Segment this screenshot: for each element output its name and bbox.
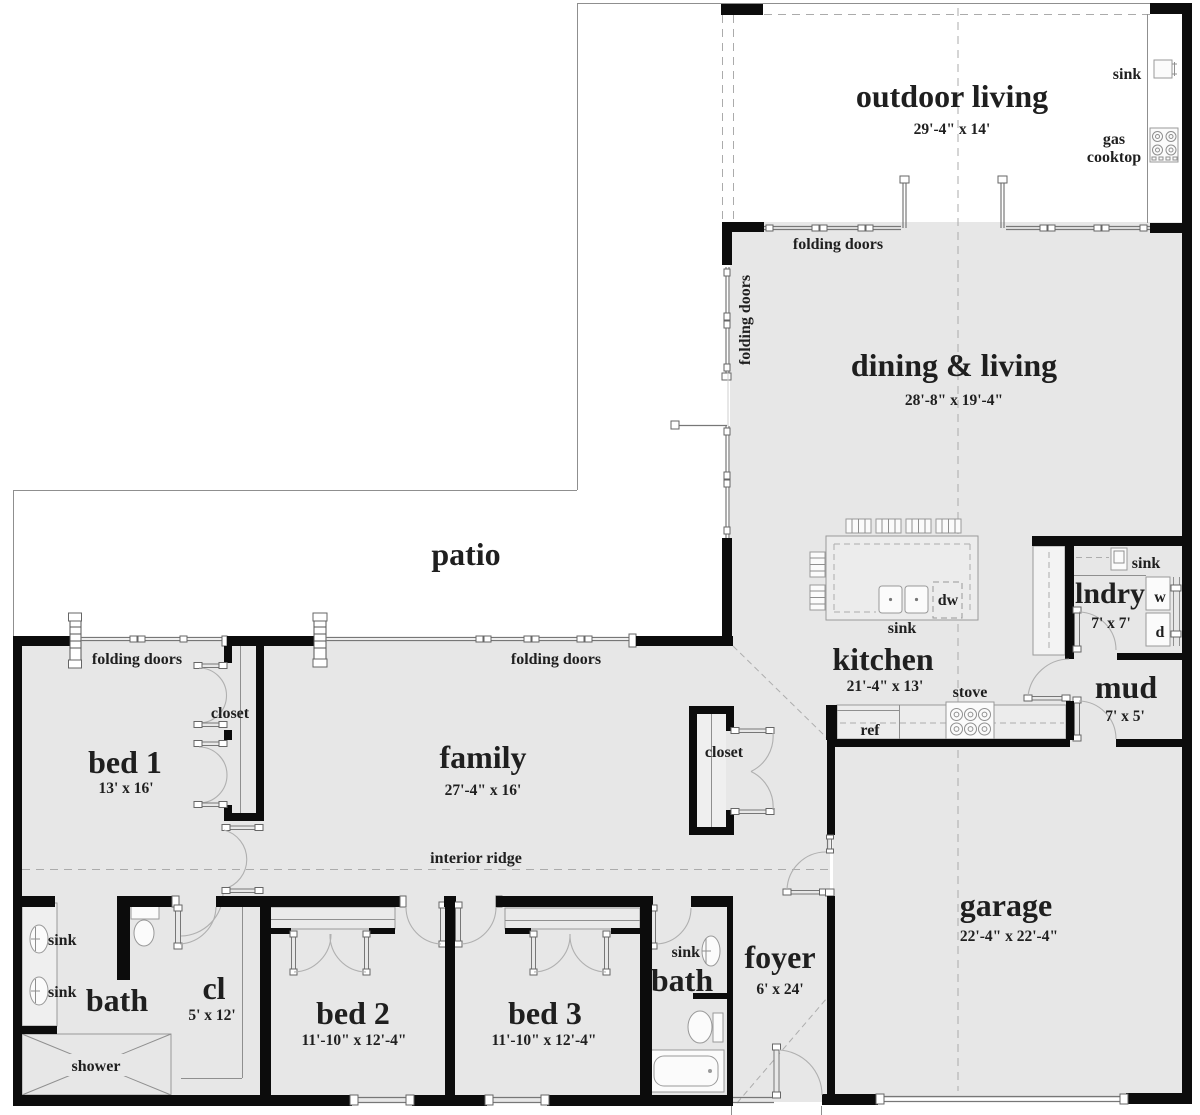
svg-text:mud: mud bbox=[1095, 669, 1157, 705]
svg-text:27'-4" x 16': 27'-4" x 16' bbox=[445, 782, 522, 799]
svg-text:sink: sink bbox=[672, 944, 701, 961]
svg-text:folding doors: folding doors bbox=[511, 651, 601, 668]
svg-text:cooktop: cooktop bbox=[1087, 149, 1141, 166]
svg-text:29'-4" x 14': 29'-4" x 14' bbox=[914, 121, 991, 138]
svg-text:21'-4" x 13': 21'-4" x 13' bbox=[847, 678, 924, 695]
svg-text:patio: patio bbox=[431, 536, 500, 572]
svg-text:family: family bbox=[439, 739, 526, 775]
svg-text:bed 3: bed 3 bbox=[508, 995, 582, 1031]
svg-text:28'-8" x 19'-4": 28'-8" x 19'-4" bbox=[905, 392, 1003, 409]
svg-text:outdoor living: outdoor living bbox=[856, 78, 1048, 114]
svg-text:bath: bath bbox=[86, 982, 148, 1018]
svg-text:bed 2: bed 2 bbox=[316, 995, 390, 1031]
svg-text:cl: cl bbox=[202, 970, 225, 1006]
svg-text:bath: bath bbox=[651, 962, 713, 998]
svg-text:7' x 5': 7' x 5' bbox=[1105, 708, 1145, 725]
svg-text:sink: sink bbox=[1132, 555, 1161, 572]
svg-text:folding doors: folding doors bbox=[793, 236, 883, 253]
svg-text:foyer: foyer bbox=[744, 939, 815, 975]
svg-text:5' x 12': 5' x 12' bbox=[188, 1007, 235, 1024]
svg-text:sink: sink bbox=[48, 932, 77, 949]
svg-text:garage: garage bbox=[960, 887, 1052, 923]
svg-text:w: w bbox=[1154, 589, 1166, 606]
svg-text:d: d bbox=[1156, 624, 1165, 641]
svg-text:sink: sink bbox=[1113, 66, 1142, 83]
svg-text:ref: ref bbox=[860, 722, 880, 739]
svg-text:13' x 16': 13' x 16' bbox=[98, 780, 153, 797]
svg-text:6' x 24': 6' x 24' bbox=[756, 981, 803, 998]
svg-text:22'-4" x 22'-4": 22'-4" x 22'-4" bbox=[960, 928, 1058, 945]
svg-text:closet: closet bbox=[705, 744, 744, 761]
svg-text:11'-10" x 12'-4": 11'-10" x 12'-4" bbox=[301, 1032, 406, 1049]
svg-text:closet: closet bbox=[211, 705, 250, 722]
svg-text:folding doors: folding doors bbox=[737, 275, 754, 365]
svg-text:sink: sink bbox=[48, 984, 77, 1001]
svg-text:bed 1: bed 1 bbox=[88, 744, 162, 780]
svg-text:dw: dw bbox=[938, 592, 959, 609]
svg-text:gas: gas bbox=[1103, 131, 1125, 148]
svg-text:lndry: lndry bbox=[1075, 577, 1145, 610]
svg-text:dining & living: dining & living bbox=[851, 347, 1057, 383]
svg-text:shower: shower bbox=[72, 1058, 121, 1075]
svg-text:interior ridge: interior ridge bbox=[430, 850, 522, 867]
svg-text:11'-10" x 12'-4": 11'-10" x 12'-4" bbox=[491, 1032, 596, 1049]
svg-text:7' x 7': 7' x 7' bbox=[1091, 615, 1131, 632]
svg-text:sink: sink bbox=[888, 620, 917, 637]
svg-text:kitchen: kitchen bbox=[832, 641, 934, 677]
svg-text:stove: stove bbox=[953, 684, 988, 701]
svg-text:folding doors: folding doors bbox=[92, 651, 182, 668]
